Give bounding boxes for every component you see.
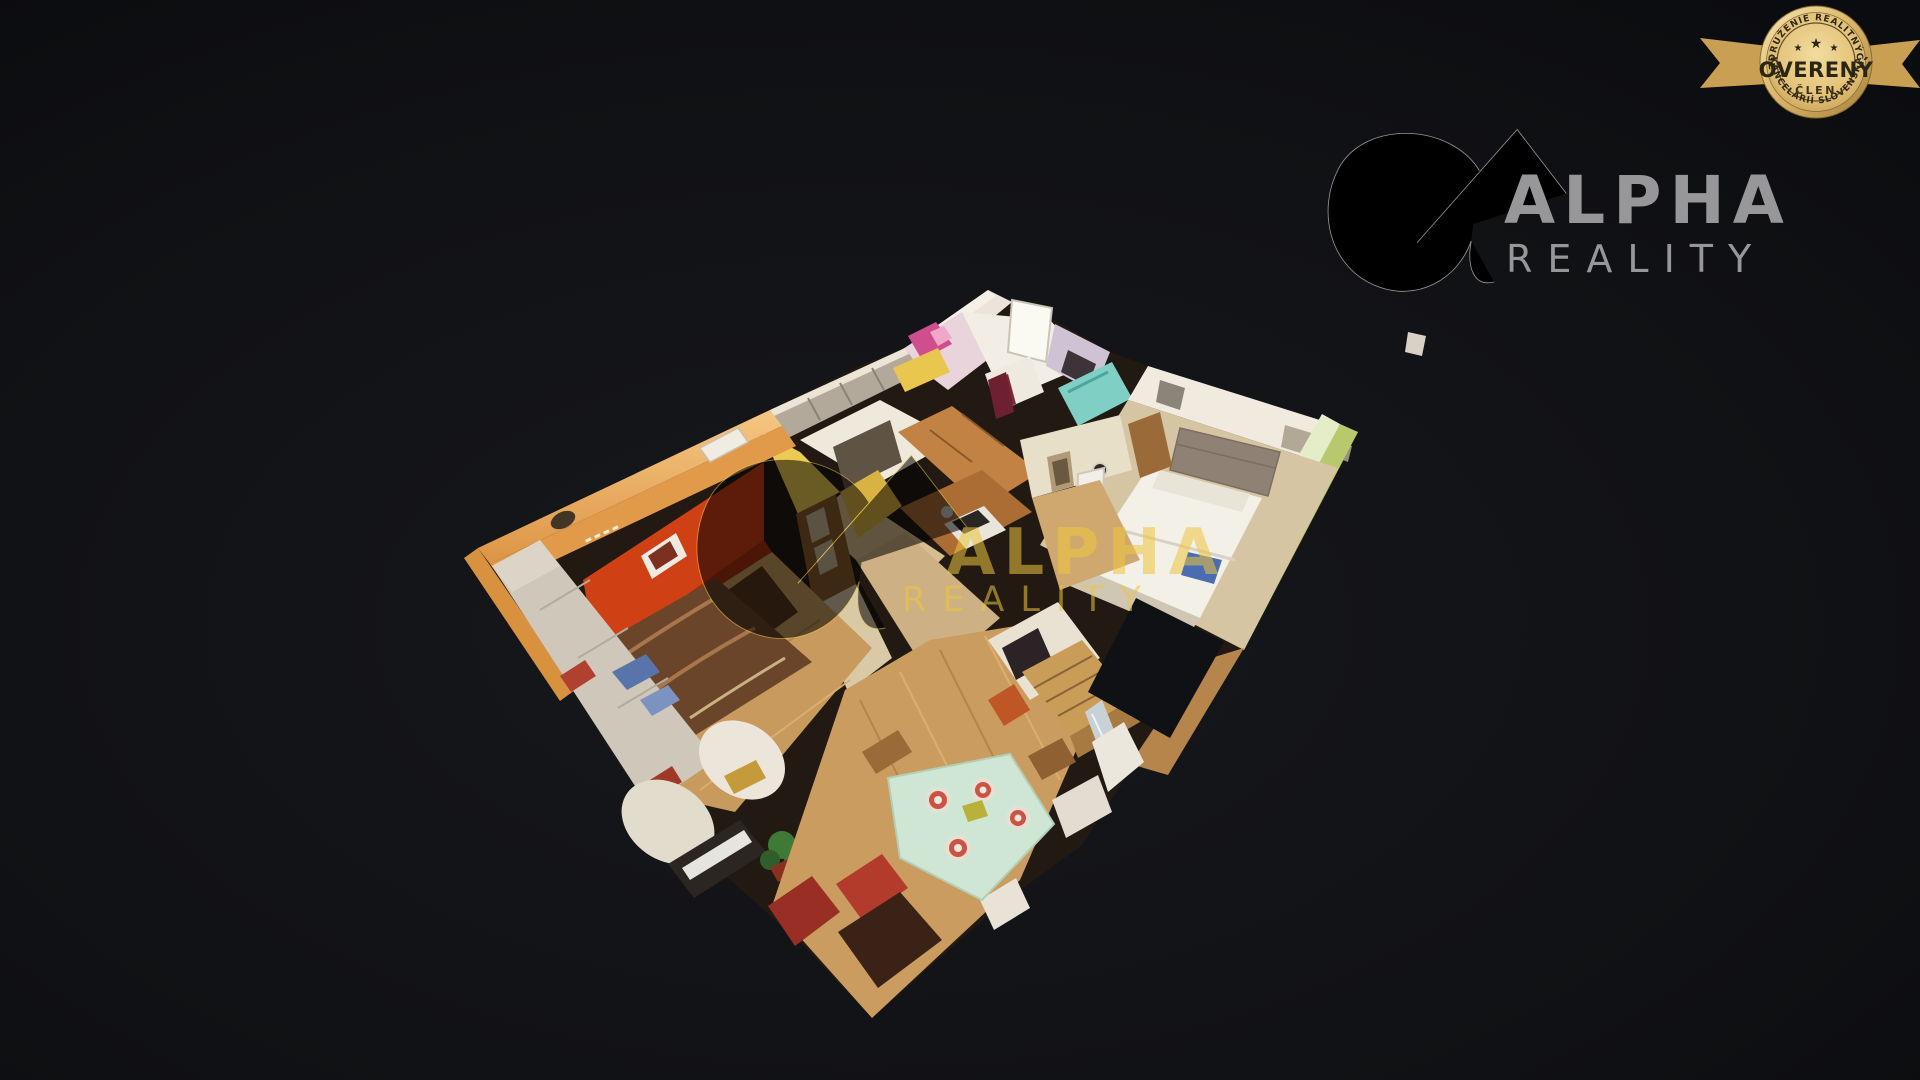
window (1008, 300, 1052, 362)
watermark-name: ALPHA (946, 516, 1226, 590)
brand-name: ALPHA (1504, 162, 1792, 239)
star-icon: ★ (1810, 36, 1823, 52)
badge-subtitle: ČLEN (1795, 84, 1837, 97)
star-icon: ★ (1830, 43, 1839, 54)
watermark-sub: REALITY (902, 580, 1157, 620)
brand-sub: REALITY (1506, 237, 1766, 281)
matterport-dollhouse-viewport[interactable]: ALPHA REALITY ALPHA REALITY ZDRUŽENIE RE… (0, 0, 1920, 1080)
badge-title: OVERENÝ (1759, 57, 1874, 82)
star-icon: ★ (1794, 43, 1803, 54)
